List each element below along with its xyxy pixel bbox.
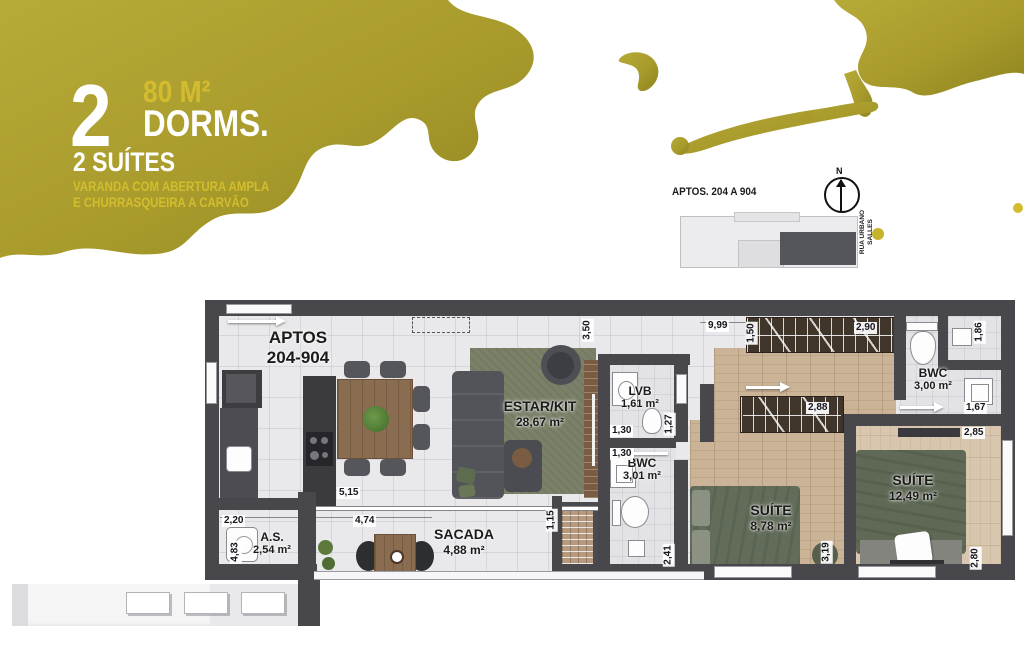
dining-chair <box>413 386 430 412</box>
grill-grate <box>562 510 593 564</box>
dim-2-85: 2,85 <box>962 427 985 439</box>
keyplan-title: APTOS. 204 A 904 <box>672 186 756 198</box>
splash-whip <box>676 102 878 154</box>
wall-lvb-bwc1 <box>602 438 676 448</box>
wall-suite1-suite2 <box>844 424 856 576</box>
dim-5-15: 5,15 <box>337 487 360 499</box>
suite1-door-arrow <box>746 386 784 389</box>
wall-living-lvb <box>598 354 610 570</box>
entry-door-arrow <box>228 320 280 323</box>
dim-9-99: 9,99 <box>706 320 729 332</box>
dim-1-30-lvb: 1,30 <box>610 425 633 437</box>
entry-door-leaf <box>226 304 292 314</box>
dim-4-83: 4,83 <box>230 540 242 563</box>
sofa-cushion-green <box>458 484 476 498</box>
keyplan-building <box>680 212 858 270</box>
dim-2-20: 2,20 <box>222 515 245 527</box>
armchair-seat <box>547 352 574 379</box>
room-label-suite1: SUÍTE 8,78 m² <box>728 502 814 533</box>
wall-left <box>205 300 219 580</box>
lvb-toilet <box>642 408 662 434</box>
kitchen-window <box>206 362 217 404</box>
coffee-table <box>504 440 542 492</box>
burner <box>310 451 319 460</box>
balcony-plant-pot <box>318 540 333 555</box>
suite2-window <box>858 566 936 578</box>
balcony-plant-pot <box>322 557 335 570</box>
splash-droplet-3 <box>1013 203 1023 213</box>
podium-cap-left <box>12 584 28 626</box>
unit-label: APTOS 204-904 <box>240 328 356 368</box>
bwc2-shower-niche <box>952 328 972 346</box>
room-label-lvb: LVB 1,61 m² <box>614 384 666 411</box>
burner <box>322 452 328 458</box>
wall-suite1-left <box>700 384 714 442</box>
dim-1-15: 1,15 <box>546 508 558 531</box>
room-label-suite2: SUÍTE 12,49 m² <box>868 472 958 503</box>
bwc2-door-arrow <box>900 406 938 409</box>
dim-2-90: 2,90 <box>854 322 877 334</box>
splash-hook-droplet <box>619 52 659 91</box>
round-armchair <box>541 345 581 385</box>
keyplan-building-core <box>738 240 784 268</box>
room-label-estar: ESTAR/KIT 28,67 m² <box>490 398 590 429</box>
dim-1-86: 1,86 <box>974 320 986 343</box>
room-label-bwc2: BWC 3,00 m² <box>902 366 964 393</box>
dim-1-67: 1,67 <box>964 402 987 414</box>
keyplan-building-notch <box>734 212 800 222</box>
bwc1-niche <box>628 540 645 557</box>
tv-screen <box>592 394 595 466</box>
cooktop <box>306 432 333 466</box>
north-arrow-head <box>836 174 846 187</box>
dim-3-50: 3,50 <box>582 318 594 341</box>
wall-suite2-top <box>844 414 1014 426</box>
room-label-as: A.S. 2,54 m² <box>244 530 300 557</box>
bwc1-door-arrow <box>630 452 668 455</box>
suite2-side-window <box>1002 440 1013 536</box>
dim-2-88: 2,88 <box>806 402 829 414</box>
dimension-line <box>220 517 432 518</box>
suite1-pillow <box>692 490 710 526</box>
wall-stub-below <box>298 576 320 626</box>
wall-as-top <box>218 498 298 510</box>
kitchen-sink <box>226 446 252 472</box>
splash-whip-blob <box>671 137 689 155</box>
wall-bwc1-right <box>674 460 688 570</box>
fridge-front <box>226 374 256 403</box>
keyplan-street-label: RUA URBANO SALLES <box>845 216 895 266</box>
fridge <box>222 370 262 408</box>
marketing-floorplan-page: { "header": { "number": "2", "area": "80… <box>0 0 1024 647</box>
dining-chair <box>380 361 406 378</box>
bwc1-toilet <box>621 496 649 528</box>
headline-feature-1: VARANDA COM ABERTURA AMPLA <box>73 180 269 194</box>
burner <box>321 437 328 444</box>
balcony-table <box>374 534 416 576</box>
wall-bwc2-inner-v <box>938 316 948 366</box>
dining-chair <box>344 459 370 476</box>
suite1-pillow <box>692 530 710 566</box>
bwc2-toilet-tank <box>906 322 938 331</box>
wall-as-right <box>298 492 316 580</box>
headline-feature-2: E CHURRASQUEIRA A CARVÃO <box>73 196 249 210</box>
bwc2-vanity <box>964 378 993 405</box>
table-plant <box>363 406 389 432</box>
churrasqueira-grill <box>556 502 600 572</box>
dim-4-74: 4,74 <box>353 515 376 527</box>
bwc1-toilet-tank <box>612 500 621 526</box>
headline-suites: 2 SUÍTES <box>73 149 175 176</box>
table-centerpiece <box>390 550 404 564</box>
dim-1-27: 1,27 <box>664 412 676 435</box>
room-label-bwc1: BWC 3,01 m² <box>612 456 672 483</box>
balcony-railing <box>314 571 704 580</box>
podium-window-3 <box>241 592 285 614</box>
dim-2-41: 2,41 <box>663 543 675 566</box>
bwc2-basin <box>971 384 989 402</box>
north-indicator: N <box>822 166 862 216</box>
dim-1-50: 1,50 <box>746 321 758 344</box>
lvb-door-opening <box>676 374 687 404</box>
room-label-sacada: SACADA 4,88 m² <box>422 526 506 557</box>
splash-right-blob <box>834 0 1024 96</box>
ceiling-vent-dashed <box>412 317 470 333</box>
suite2-console <box>898 428 960 437</box>
suite1-window <box>714 566 792 578</box>
dim-1-30-bwc: 1,30 <box>610 448 633 460</box>
splash-droplet-1 <box>800 112 812 124</box>
dim-3-19: 3,19 <box>821 540 833 563</box>
burner <box>310 437 317 444</box>
podium-window-1 <box>126 592 170 614</box>
podium-window-2 <box>184 592 228 614</box>
dim-2-80: 2,80 <box>970 546 982 569</box>
dining-chair <box>380 459 406 476</box>
coffee-table-tray <box>512 448 532 468</box>
dining-chair <box>413 424 430 450</box>
headline-dorms: DORMS. <box>143 105 269 142</box>
